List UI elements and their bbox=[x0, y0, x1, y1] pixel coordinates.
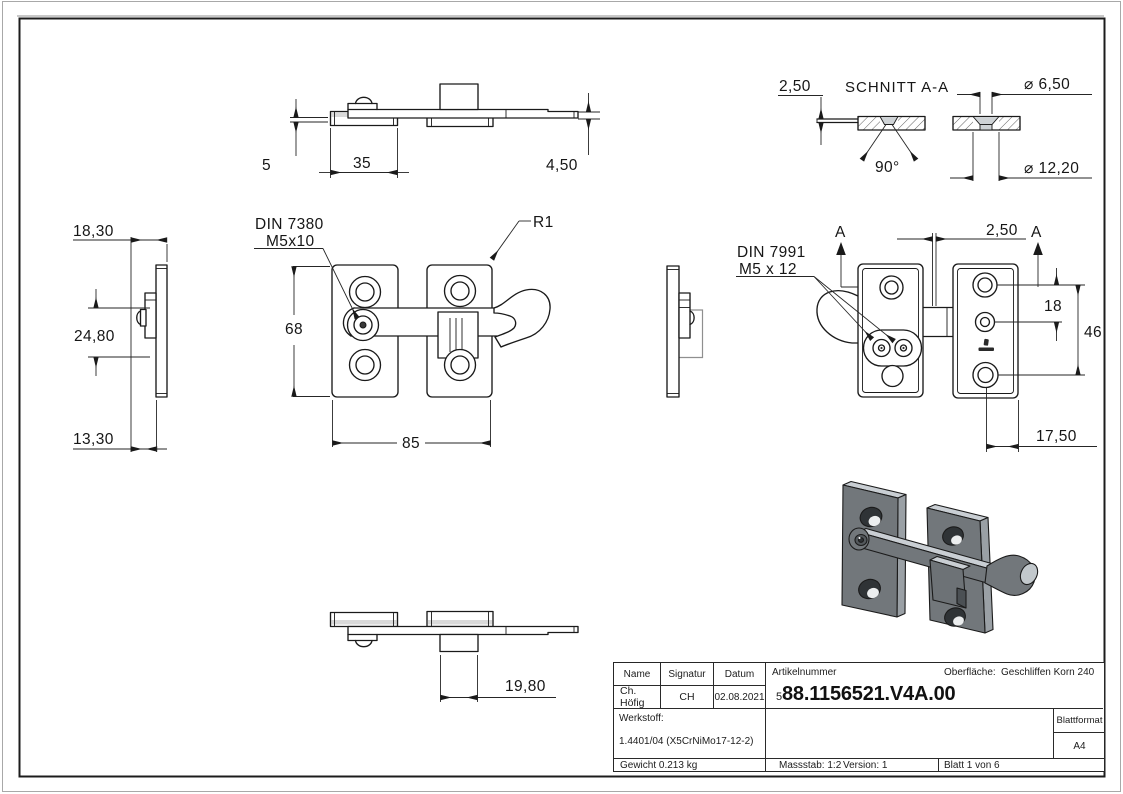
title-block: Name Signatur Datum Ch. Höfig CH 02.08.2… bbox=[613, 662, 1105, 772]
dim-section-hole-small: ⌀ 6,50 bbox=[1024, 76, 1070, 93]
dim-bottom-block: 19,80 bbox=[505, 678, 546, 695]
section-part bbox=[817, 117, 1020, 131]
date-label: Datum bbox=[714, 663, 766, 686]
signature-label: Signatur bbox=[661, 663, 714, 686]
dim-side-plate: 13,30 bbox=[73, 431, 114, 448]
dim-rear-edge: 17,50 bbox=[1036, 428, 1077, 445]
author-signature: CH bbox=[661, 686, 714, 709]
dim-side-handle: 24,80 bbox=[74, 328, 115, 345]
dim-section-hole-large: ⌀ 12,20 bbox=[1024, 160, 1079, 177]
version-value: Version: 1 bbox=[843, 760, 887, 771]
top-view-part bbox=[331, 84, 579, 127]
section-arrow-left bbox=[836, 242, 846, 255]
article-cell: Artikelnummer Oberfläche: Geschliffen Ko… bbox=[766, 663, 1103, 709]
rear-part bbox=[817, 264, 1018, 398]
top-view-dimensions: 5 35 4,50 bbox=[262, 93, 600, 178]
format-value: A4 bbox=[1054, 733, 1105, 759]
format-cell: Blattformat A4 bbox=[1054, 709, 1105, 759]
dim-top-height: 4,50 bbox=[546, 157, 578, 174]
scale-cell: Massstab: 1:2 Version: 1 bbox=[766, 759, 939, 772]
material-label: Werkstoff: bbox=[619, 713, 664, 724]
weight-value: Gewicht 0.213 kg bbox=[614, 759, 766, 772]
sheet-cell: Blatt 1 von 6 bbox=[939, 759, 1105, 772]
author-name: Ch. Höfig bbox=[614, 686, 661, 709]
view-front: DIN 7380 M5x10 R1 68 85 bbox=[254, 214, 554, 452]
front-part bbox=[332, 265, 550, 397]
scale-value: Massstab: 1:2 bbox=[779, 760, 841, 771]
article-label: Artikelnummer bbox=[772, 667, 836, 678]
surface-label: Oberfläche: bbox=[944, 667, 996, 678]
sheet-value: Blatt 1 von 6 bbox=[944, 760, 1000, 771]
format-label: Blattformat bbox=[1054, 709, 1105, 733]
view-side-mid bbox=[667, 266, 703, 397]
dim-top-width: 35 bbox=[353, 155, 371, 172]
section-title: SCHNITT A-A bbox=[845, 79, 949, 96]
drawing-sheet: 5 35 4,50 SCHNITT A-A bbox=[0, 0, 1123, 794]
note-m5x12: M5 x 12 bbox=[739, 261, 797, 278]
section-marker-a-left: A bbox=[835, 224, 846, 241]
side-part bbox=[131, 237, 167, 452]
dim-section-angle: 90° bbox=[875, 159, 900, 176]
material-value: 1.4401/04 (X5CrNiMo17-12-2) bbox=[619, 736, 754, 747]
dim-rear-hole-span: 46 bbox=[1084, 324, 1102, 341]
note-din7991: DIN 7991 bbox=[737, 244, 806, 261]
section-marker-a-right: A bbox=[1031, 224, 1042, 241]
view-top: 5 35 4,50 bbox=[262, 84, 600, 178]
view-bottom: 19,80 bbox=[331, 612, 579, 703]
empty-cell bbox=[766, 709, 1054, 759]
view-side-left: 18,30 24,80 13,30 bbox=[73, 223, 167, 452]
dim-front-height: 68 bbox=[285, 321, 303, 338]
name-label: Name bbox=[614, 663, 661, 686]
view-rear: DIN 7991 M5 x 12 A A 2,50 18 46 bbox=[736, 222, 1102, 452]
dim-section-thickness: 2,50 bbox=[779, 78, 811, 95]
note-radius: R1 bbox=[533, 214, 554, 231]
bottom-dimensions: 19,80 bbox=[441, 655, 557, 702]
view-section: SCHNITT A-A 2,50 90° bbox=[778, 76, 1092, 181]
surface-value: Geschliffen Korn 240 bbox=[1001, 667, 1094, 678]
bottom-part bbox=[331, 612, 579, 652]
article-number: 88.1156521.V4A.00 bbox=[782, 683, 955, 706]
dim-front-width: 85 bbox=[402, 435, 420, 452]
drawing-date: 02.08.2021 bbox=[714, 686, 766, 709]
section-arrow-right bbox=[1033, 242, 1043, 255]
material-cell: Werkstoff: 1.4401/04 (X5CrNiMo17-12-2) bbox=[614, 709, 766, 759]
note-din7380: DIN 7380 bbox=[255, 216, 324, 233]
note-m5x10: M5x10 bbox=[266, 233, 315, 250]
dim-rear-hole-top: 18 bbox=[1044, 298, 1062, 315]
iso-slider-block bbox=[930, 557, 970, 609]
view-isometric bbox=[842, 482, 1041, 634]
dim-side-depth: 18,30 bbox=[73, 223, 114, 240]
dim-rear-offset: 2,50 bbox=[986, 222, 1018, 239]
dim-top-thickness: 5 bbox=[262, 157, 271, 174]
